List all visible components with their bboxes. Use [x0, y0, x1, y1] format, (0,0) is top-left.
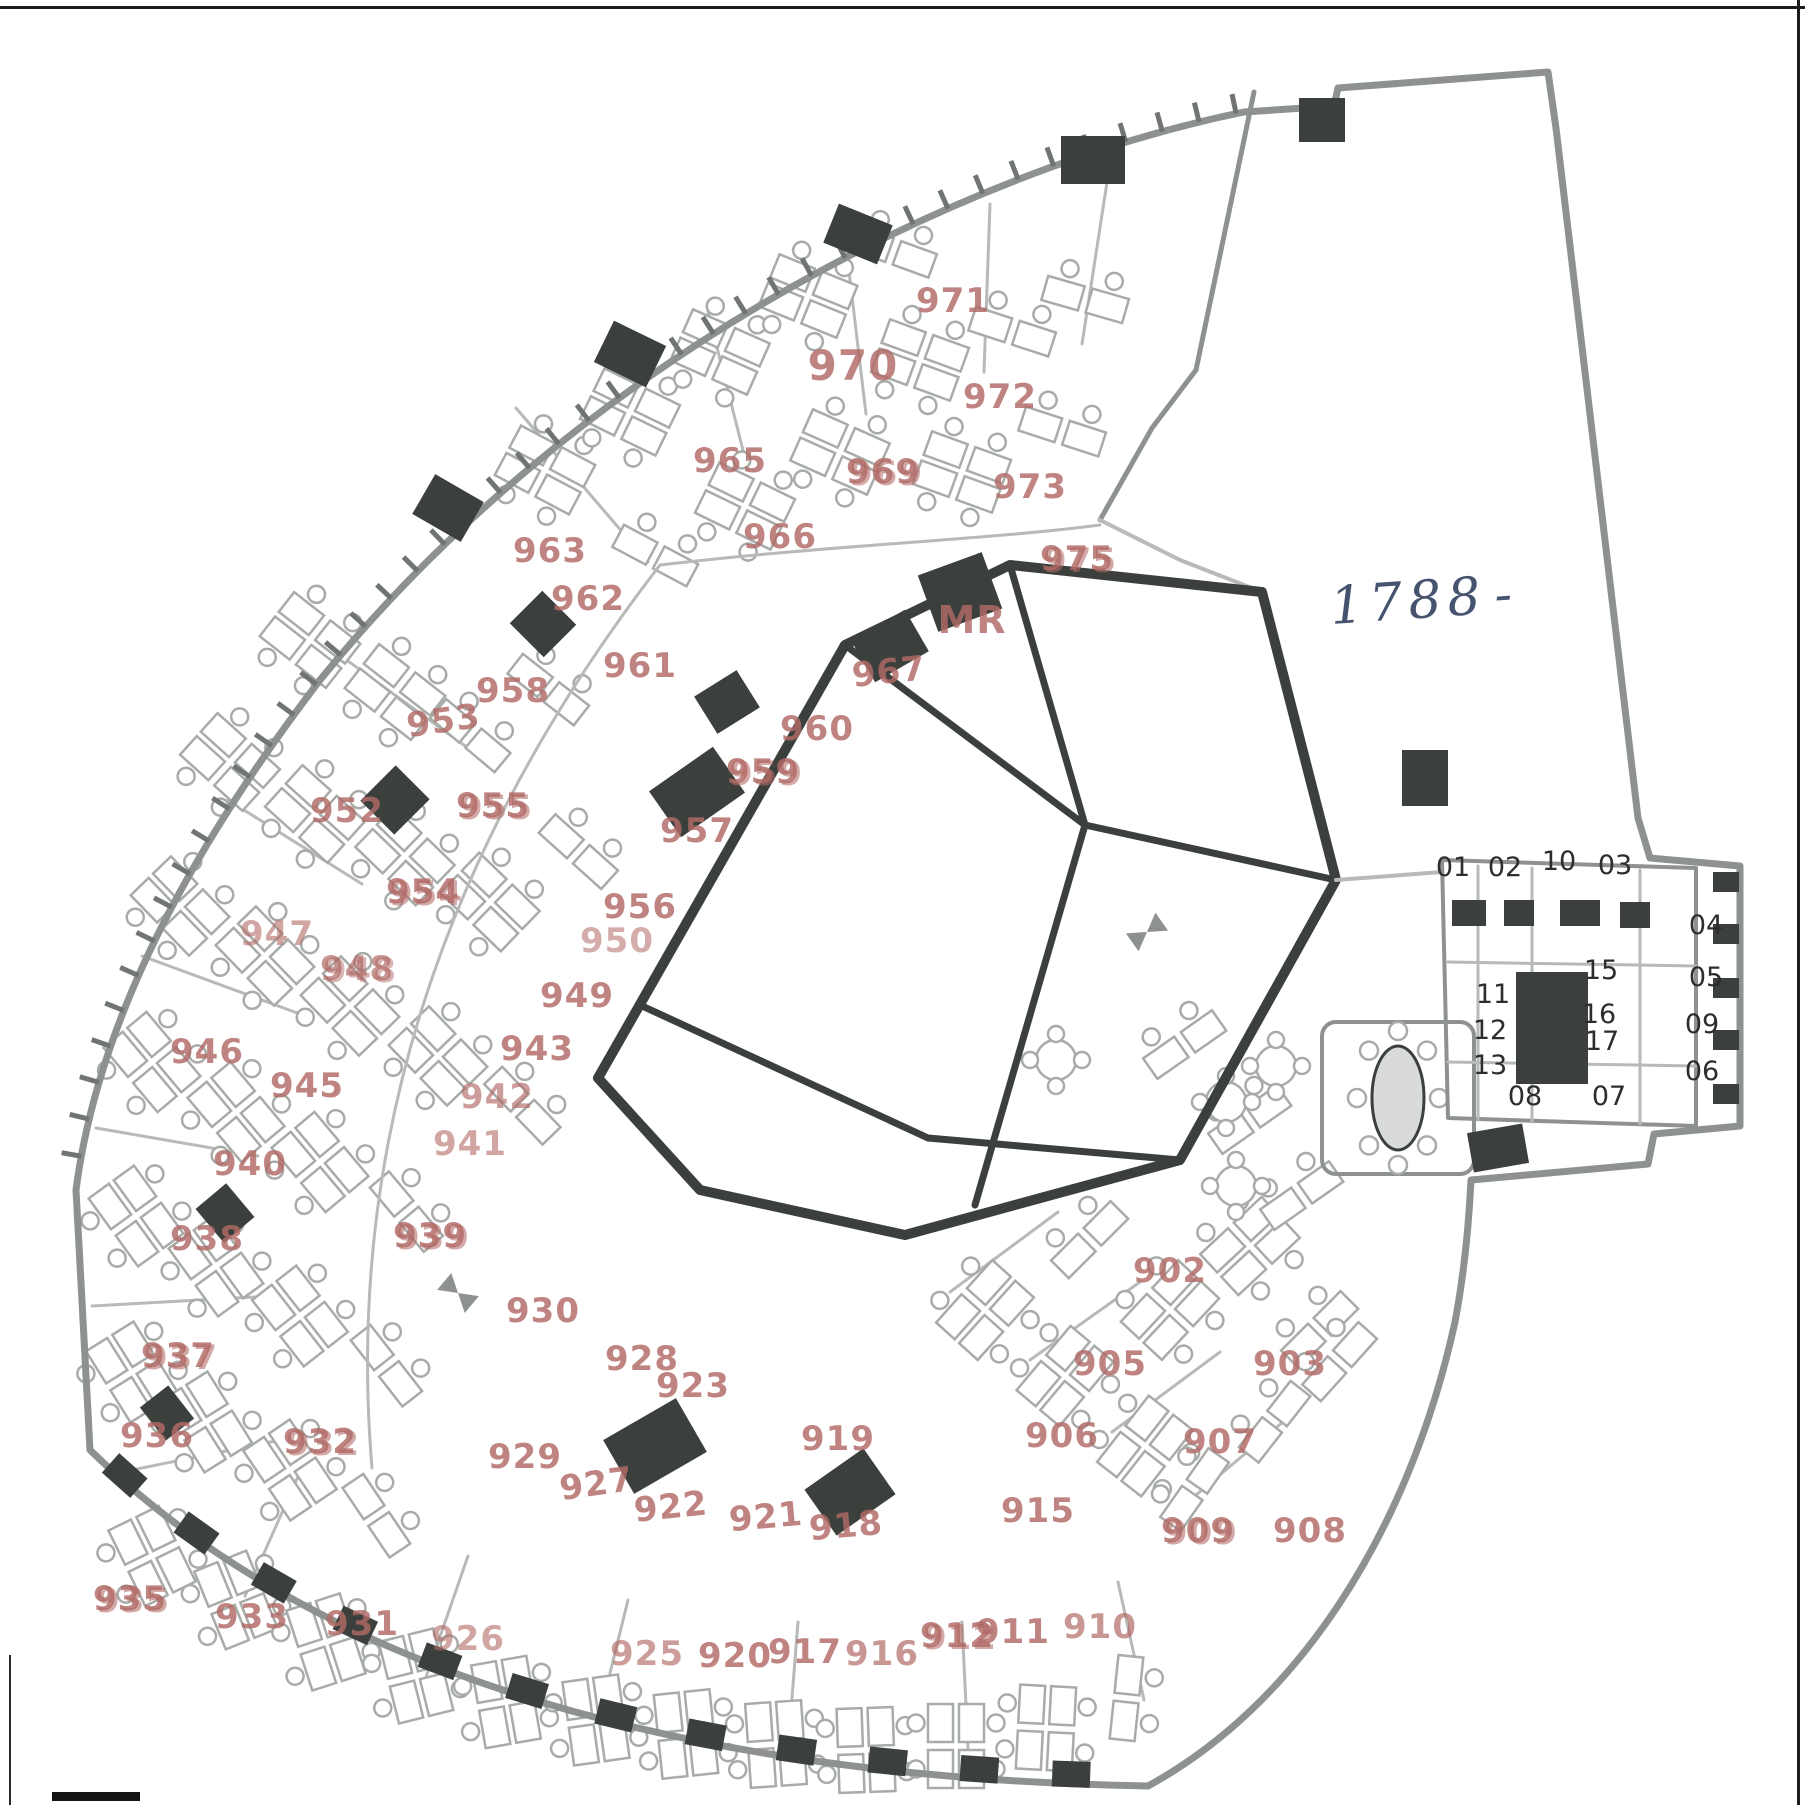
room-label-939: 939	[393, 1216, 467, 1256]
conference-table	[1372, 1046, 1424, 1150]
column-layer	[102, 98, 1739, 1788]
wall	[1010, 565, 1085, 825]
room-label-973: 973	[993, 467, 1067, 507]
unit-label-13: 13	[1473, 1050, 1507, 1081]
column-block	[776, 1734, 817, 1765]
room-label-906: 906	[1025, 1416, 1099, 1456]
desk-cluster	[995, 1684, 1096, 1773]
room-label-919: 919	[801, 1419, 875, 1459]
conference-chair	[1418, 1136, 1436, 1154]
room-label-910: 910	[1063, 1607, 1137, 1647]
furniture-layer	[69, 176, 1474, 1794]
column-block	[1516, 972, 1588, 1084]
room-label-903: 903	[1253, 1344, 1327, 1384]
conference-chair	[1389, 1156, 1407, 1174]
desk-cluster	[1041, 255, 1135, 323]
facade-tick	[278, 703, 294, 715]
room-label-MR: MR	[937, 598, 1006, 642]
room-label-949: 949	[540, 976, 614, 1016]
room-label-908: 908	[1273, 1511, 1347, 1551]
round-table	[1022, 1026, 1090, 1094]
wall	[660, 525, 1100, 565]
conference-chair	[1418, 1042, 1436, 1060]
wall	[1448, 962, 1696, 966]
room-label-945: 945	[270, 1066, 344, 1106]
unit-label-05: 05	[1689, 962, 1723, 993]
column-block	[412, 474, 483, 542]
room-label-961: 961	[603, 646, 677, 686]
facade-tick	[404, 557, 418, 571]
unit-label-12: 12	[1473, 1015, 1507, 1046]
column-block	[1061, 136, 1125, 184]
room-label-902: 902	[1133, 1251, 1207, 1291]
facade-tick	[80, 1077, 99, 1083]
facade-tick	[1194, 103, 1199, 122]
room-label-954: 954	[386, 872, 460, 912]
wall	[640, 1005, 928, 1138]
room-label-963: 963	[513, 531, 587, 571]
unit-label-07: 07	[1592, 1081, 1626, 1112]
room-label-970: 970	[808, 341, 899, 390]
facade-tick	[377, 585, 392, 599]
scan-edge-right	[1797, 0, 1800, 1805]
desk-cluster	[539, 798, 633, 889]
room-label-948: 948	[320, 949, 394, 989]
room-label-937: 937	[141, 1336, 215, 1376]
unit-label-02: 02	[1488, 852, 1522, 883]
unit-label-15: 15	[1584, 955, 1618, 986]
room-label-943: 943	[500, 1029, 574, 1069]
room-label-957: 957	[660, 811, 734, 851]
column-block	[694, 670, 760, 734]
column-block	[1402, 750, 1448, 806]
facade-tick	[940, 190, 948, 208]
room-label-962: 962	[551, 579, 625, 619]
room-label-915: 915	[1001, 1491, 1075, 1531]
room-label-905: 905	[1073, 1344, 1147, 1384]
desk-cluster	[612, 506, 708, 586]
facade-tick	[192, 831, 209, 841]
column-block	[1713, 1084, 1739, 1104]
room-label-960: 960	[780, 709, 854, 749]
room-label-921: 921	[727, 1494, 804, 1540]
scan-edge-left	[9, 1655, 11, 1805]
facade-tick	[105, 1003, 124, 1010]
column-block	[1299, 98, 1345, 142]
wall	[1085, 825, 1336, 880]
room-label-917: 917	[768, 1632, 842, 1672]
room-label-946: 946	[170, 1032, 244, 1072]
facade-tick	[1047, 147, 1054, 166]
facade-tick	[905, 206, 913, 224]
room-label-971: 971	[916, 281, 990, 321]
facade-tick	[735, 297, 745, 314]
room-label-966: 966	[743, 517, 817, 557]
room-label-936: 936	[120, 1416, 194, 1456]
unit-label-10: 10	[1542, 846, 1576, 877]
desk-cluster	[1110, 1655, 1165, 1743]
unit-label-17: 17	[1585, 1026, 1619, 1057]
room-label-972: 972	[963, 377, 1037, 417]
facade-ticks	[62, 94, 1244, 1190]
room-label-975: 975	[1040, 539, 1114, 579]
room-label-909: 909	[1161, 1511, 1235, 1551]
room-label-942: 942	[460, 1077, 534, 1117]
unit-label-11: 11	[1476, 979, 1510, 1010]
room-label-938: 938	[170, 1219, 244, 1259]
room-label-959: 959	[726, 752, 800, 792]
room-label-935: 935	[93, 1579, 167, 1619]
room-label-958: 958	[476, 671, 550, 711]
room-label-967: 967	[850, 648, 928, 696]
room-label-929: 929	[488, 1437, 562, 1477]
floor-plan-svg: 9719709729699699659739669759759639629619…	[0, 0, 1805, 1805]
unit-label-01: 01	[1436, 852, 1470, 883]
conference-chair	[1389, 1022, 1407, 1040]
scan-edge-top	[0, 6, 1805, 9]
room-label-955: 955	[456, 786, 530, 826]
room-label-927: 927	[557, 1459, 636, 1509]
wall	[928, 1138, 1180, 1160]
unit-label-04: 04	[1689, 910, 1723, 941]
room-label-926: 926	[431, 1619, 505, 1659]
room-label-923: 923	[656, 1366, 730, 1406]
room-label-941: 941	[433, 1124, 507, 1164]
room-label-918: 918	[807, 1503, 884, 1549]
unit-label-09: 09	[1685, 1009, 1719, 1040]
room-label-965: 965	[693, 441, 767, 481]
column-block	[1560, 900, 1600, 926]
column-block	[1620, 902, 1650, 928]
facade-tick	[1232, 94, 1236, 114]
conference-chair	[1360, 1136, 1378, 1154]
column-block	[102, 1453, 148, 1498]
room-label-907: 907	[1183, 1422, 1257, 1462]
facade-tick	[1011, 161, 1018, 180]
conference-chair	[1360, 1042, 1378, 1060]
room-label-920: 920	[698, 1636, 772, 1676]
facade-tick	[488, 478, 501, 493]
room-label-947: 947	[240, 914, 314, 954]
facade-tick	[120, 967, 138, 975]
room-label-930: 930	[506, 1291, 580, 1331]
wall	[1336, 872, 1442, 880]
facade-tick	[431, 530, 445, 544]
facade-tick	[62, 1153, 82, 1157]
facade-tick	[92, 1040, 111, 1047]
scanned-floor-plan-page: 9719709729699699659739669759759639629619…	[0, 0, 1805, 1805]
column-block	[1467, 1123, 1529, 1172]
room-label-911: 911	[976, 1612, 1050, 1652]
unit-label-06: 06	[1685, 1056, 1719, 1087]
facade-tick	[70, 1114, 89, 1119]
facade-tick	[137, 932, 155, 941]
column-block	[867, 1746, 907, 1776]
room-label-950: 950	[580, 921, 654, 961]
unit-label-03: 03	[1598, 850, 1632, 881]
room-label-932: 932	[283, 1422, 357, 1462]
room-label-925: 925	[610, 1634, 684, 1674]
desk-cluster	[1131, 993, 1226, 1079]
room-label-922: 922	[632, 1483, 710, 1531]
desk-cluster	[343, 1462, 429, 1558]
column-block	[1452, 900, 1486, 926]
unit-label-08: 08	[1508, 1081, 1542, 1112]
room-label-916: 916	[845, 1634, 919, 1674]
door-symbol	[437, 1273, 479, 1313]
column-block	[1504, 900, 1534, 926]
room-label-933: 933	[215, 1597, 289, 1637]
room-label-931: 931	[325, 1604, 399, 1644]
facade-tick	[1157, 112, 1162, 131]
conference-chair	[1348, 1089, 1366, 1107]
scan-artifact-bottom-left	[52, 1792, 140, 1801]
column-block	[1052, 1760, 1091, 1787]
room-label-969: 969	[846, 452, 920, 492]
room-label-952: 952	[310, 791, 384, 831]
room-label-940: 940	[213, 1144, 287, 1184]
conference-chair	[1430, 1089, 1448, 1107]
column-block	[959, 1755, 999, 1784]
column-block	[1713, 872, 1739, 892]
facade-tick	[975, 175, 983, 193]
desk-cluster	[351, 1312, 439, 1407]
door-symbol	[1126, 913, 1168, 952]
